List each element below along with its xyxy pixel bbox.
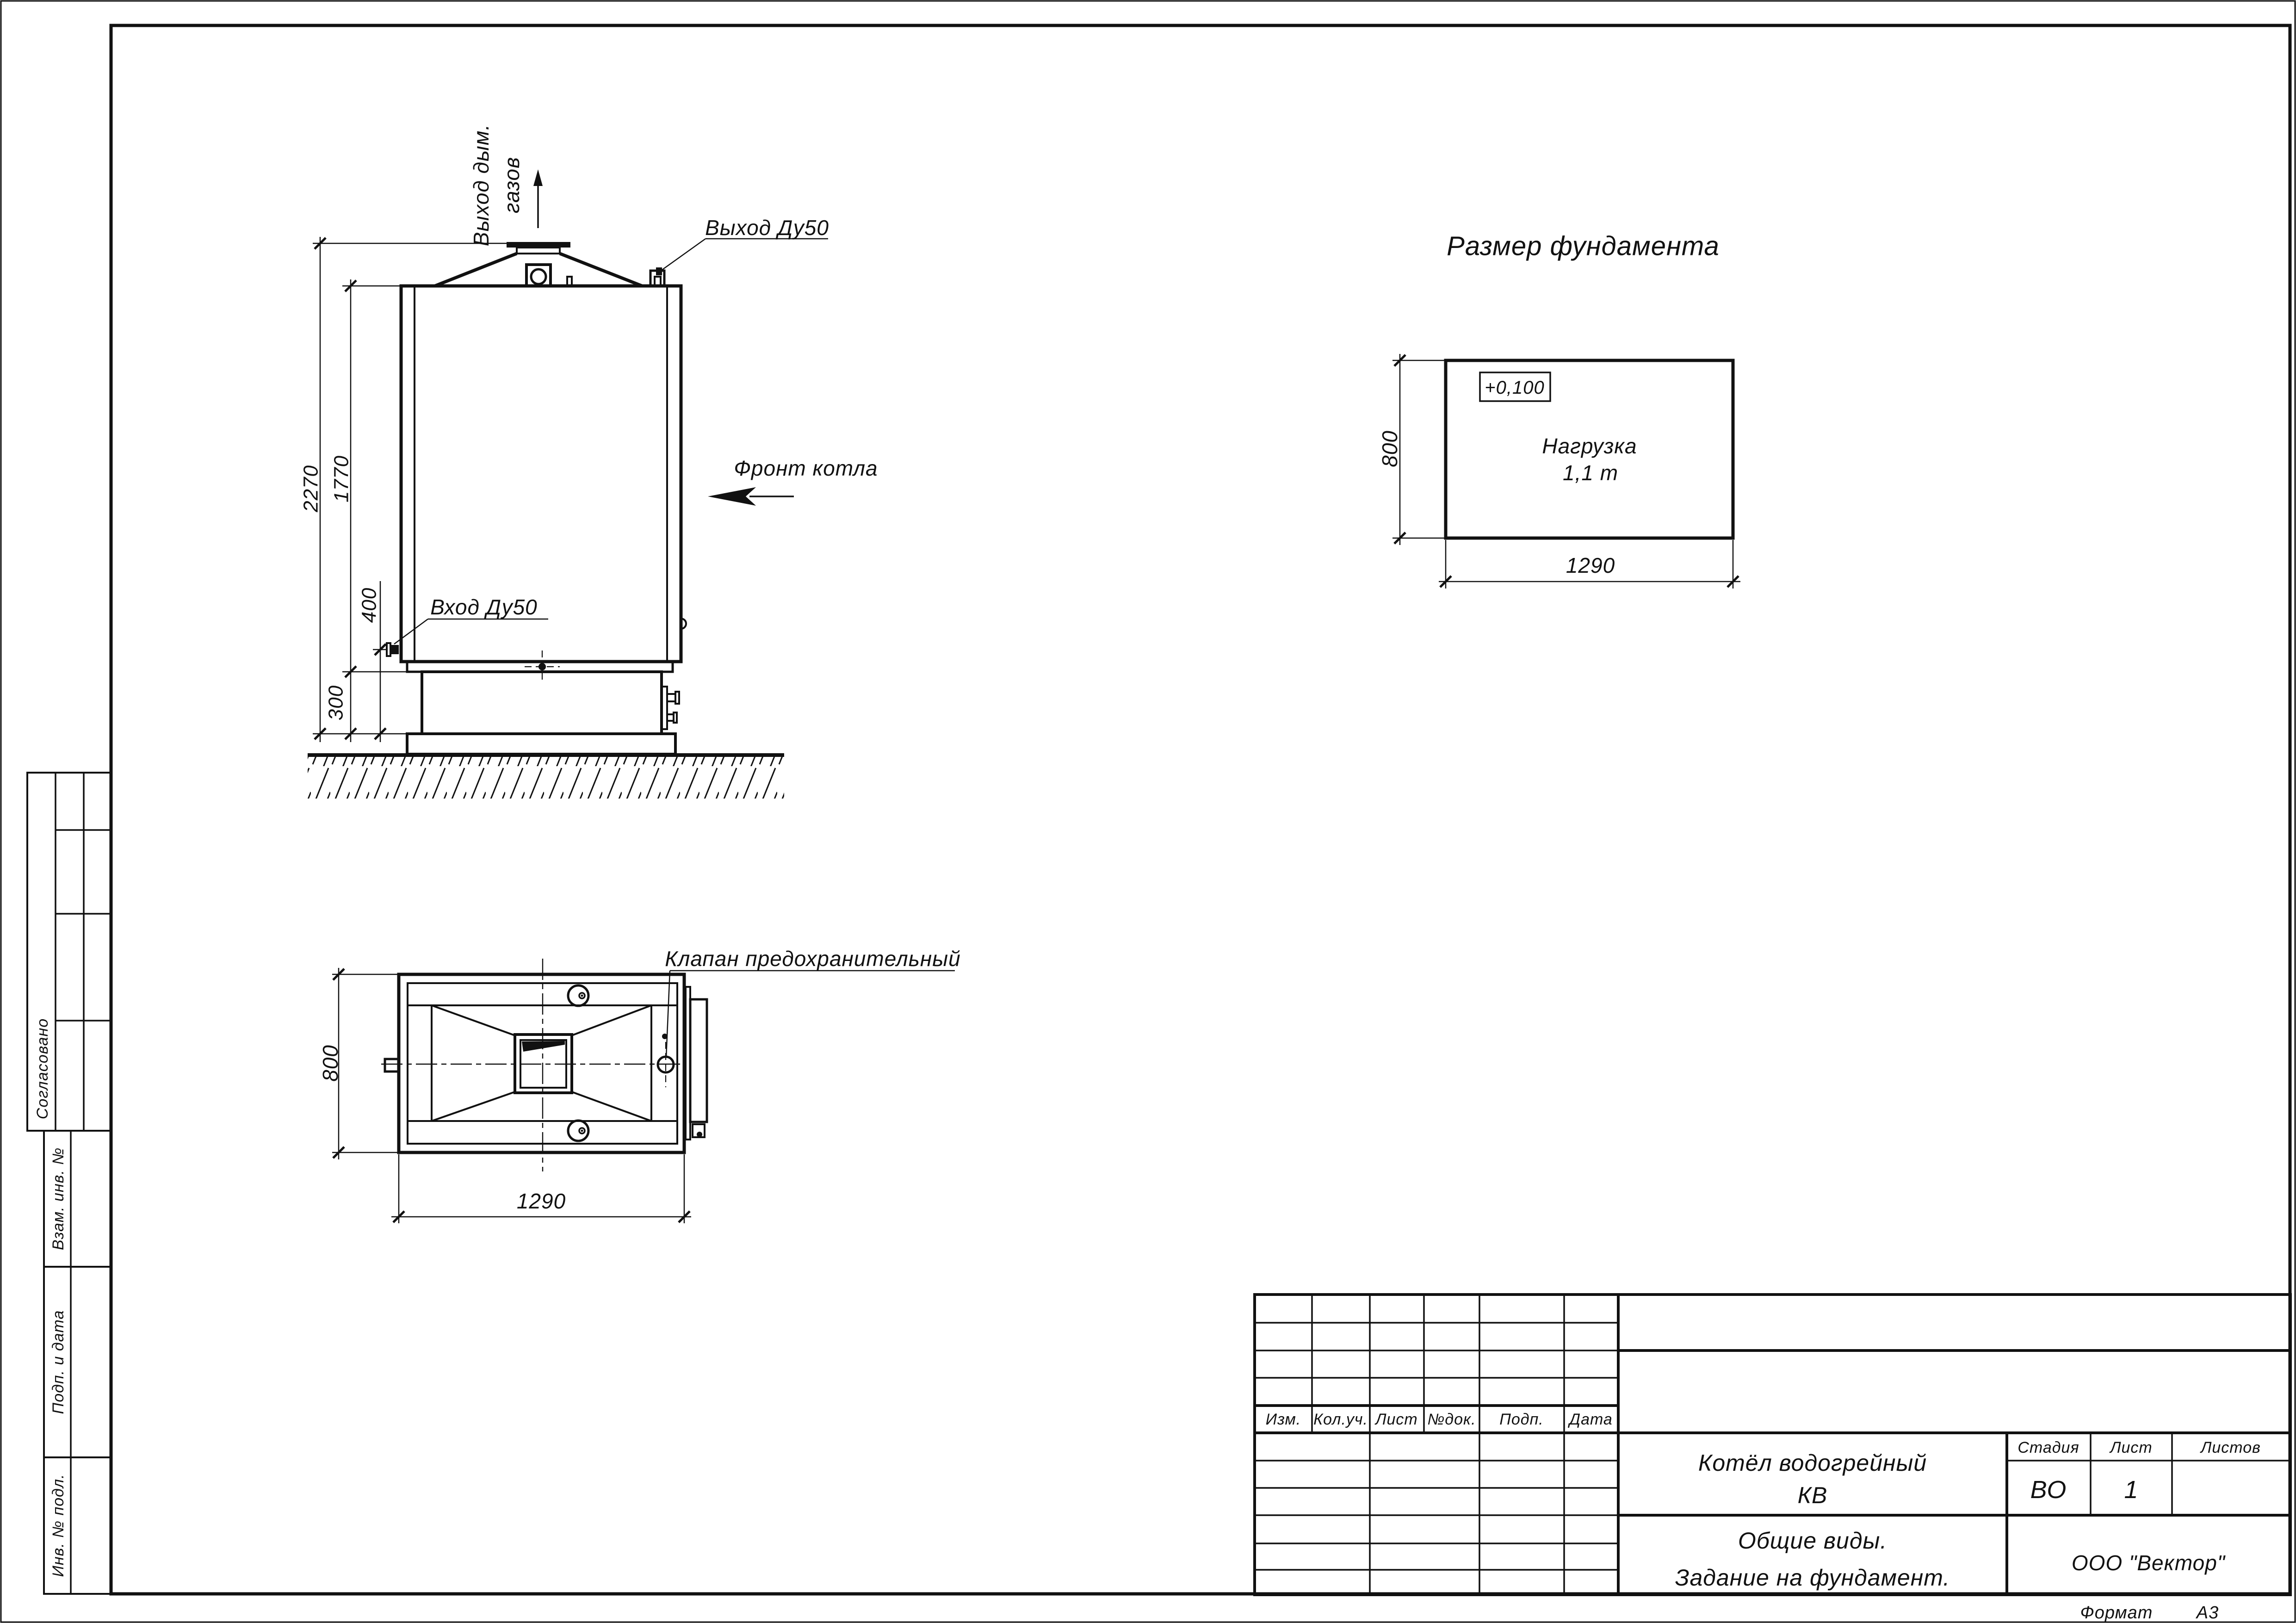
chimney-flange xyxy=(507,242,570,248)
format-label: Формат xyxy=(2080,1603,2153,1623)
flue-funnel xyxy=(432,1005,651,1121)
replace-inv-label: Взам. инв. № xyxy=(50,1147,67,1250)
foundation-title: Размер фундамента xyxy=(1447,231,1720,261)
safety-valve-port xyxy=(658,1034,674,1087)
sheet-label: Лист xyxy=(2109,1439,2153,1456)
title-block-header-row: Изм. Кол.уч. Лист №док. Подп. Дата xyxy=(1266,1411,1613,1428)
col-izm: Изм. xyxy=(1266,1411,1301,1428)
foundation-slab xyxy=(407,734,675,754)
plan-right-structure xyxy=(686,987,707,1140)
doc-type-line1: Общие виды. xyxy=(1738,1528,1887,1554)
col-podp: Подп. xyxy=(1499,1411,1544,1428)
plan-view-labels: Клапан предохранительный xyxy=(665,947,960,1058)
format-note: Формат А3 xyxy=(2080,1603,2219,1623)
ground-hatch xyxy=(308,757,784,799)
front-view-labels: Выход дым. газов Выход Ду50 Вход Ду50 Фр… xyxy=(394,124,878,644)
col-list: Лист xyxy=(1374,1411,1418,1428)
side-stamp: Согласовано Взам. инв. № Подп. и дата Ин… xyxy=(27,773,111,1594)
col-koluch: Кол.уч. xyxy=(1313,1411,1368,1428)
sign-date-label: Подп. и дата xyxy=(50,1310,67,1414)
lifting-eye-top xyxy=(568,985,588,1006)
dim-total-height: 2270 xyxy=(300,465,322,513)
doc-name-line1: Котёл водогрейный xyxy=(1698,1450,1927,1476)
doc-name-line2: КВ xyxy=(1798,1482,1828,1508)
inlet-nozzle xyxy=(387,643,399,656)
sign-date-cell: Подп. и дата xyxy=(44,1267,111,1457)
dim-base-height: 300 xyxy=(325,685,347,720)
lifting-eye-bottom xyxy=(568,1121,588,1141)
plan-view: 800 1290 Клапан предохранительный xyxy=(318,947,961,1223)
company-name: ООО "Вектор" xyxy=(2072,1551,2226,1575)
foundation-dimensions: 800 1290 xyxy=(1378,354,1740,588)
base-block xyxy=(422,672,662,734)
drawing-sheet: 2270 1770 400 300 Выход дым. газов Выход… xyxy=(0,0,2296,1623)
inv-orig-cell: Инв. № подл. xyxy=(44,1457,111,1594)
flue-exit-label-line2: газов xyxy=(500,157,524,213)
flue-exit-label-line1: Выход дым. xyxy=(469,124,493,246)
sheet-value: 1 xyxy=(2124,1476,2138,1504)
front-view: 2270 1770 400 300 Выход дым. газов Выход… xyxy=(300,124,878,799)
dim-body-height: 1770 xyxy=(330,455,353,502)
boiler-front-label: Фронт котла xyxy=(734,456,878,480)
elevation-mark: +0,100 xyxy=(1485,378,1544,398)
load-label-line2: 1,1 т xyxy=(1563,461,1618,485)
doc-type-line2: Задание на фундамент. xyxy=(1675,1565,1950,1591)
drain-point xyxy=(525,650,560,683)
boiler-front-arrow-icon xyxy=(708,487,794,506)
stage-value: ВО xyxy=(2030,1476,2067,1504)
replace-inv-cell: Взам. инв. № xyxy=(44,1131,111,1267)
agreed-label: Согласовано xyxy=(34,1018,51,1119)
inlet-label: Вход Ду50 xyxy=(430,595,538,619)
foundation-plan: Размер фундамента +0,100 Нагрузка 1,1 т … xyxy=(1378,231,1740,589)
plan-dim-width: 1290 xyxy=(517,1189,566,1213)
dim-inlet-height: 400 xyxy=(358,588,381,623)
col-data: Дата xyxy=(1567,1411,1613,1428)
stage-label: Стадия xyxy=(2018,1439,2079,1456)
roof-hatch-opening xyxy=(531,269,546,284)
outlet-leader xyxy=(662,239,706,270)
agreed-block: Согласовано xyxy=(27,773,111,1131)
plan-outline xyxy=(399,974,684,1152)
roof-slope-left xyxy=(435,254,517,286)
load-label-line1: Нагрузка xyxy=(1542,434,1637,458)
outlet-label: Выход Ду50 xyxy=(705,216,829,240)
drawing-frame xyxy=(111,25,2290,1594)
title-block: Изм. Кол.уч. Лист №док. Подп. Дата Котёл… xyxy=(1255,1295,2290,1595)
front-view-dimensions: 2270 1770 400 300 xyxy=(300,237,507,742)
flue-up-arrow-icon xyxy=(533,169,543,228)
col-ndok: №док. xyxy=(1427,1411,1476,1428)
plan-left-stub xyxy=(385,1059,399,1072)
base-side-fittings xyxy=(662,687,679,729)
safety-valve-label: Клапан предохранительный xyxy=(665,947,960,971)
format-value: А3 xyxy=(2196,1603,2219,1623)
sheets-label: Листов xyxy=(2200,1439,2261,1456)
foundation-dim-depth: 800 xyxy=(1378,430,1402,467)
plan-dim-depth: 800 xyxy=(318,1045,342,1082)
inv-orig-label: Инв. № подл. xyxy=(50,1474,67,1577)
chimney-neck xyxy=(517,248,560,254)
foundation-dim-width: 1290 xyxy=(1566,553,1615,577)
paper-edge xyxy=(1,1,2295,1622)
inlet-leader xyxy=(394,619,428,644)
